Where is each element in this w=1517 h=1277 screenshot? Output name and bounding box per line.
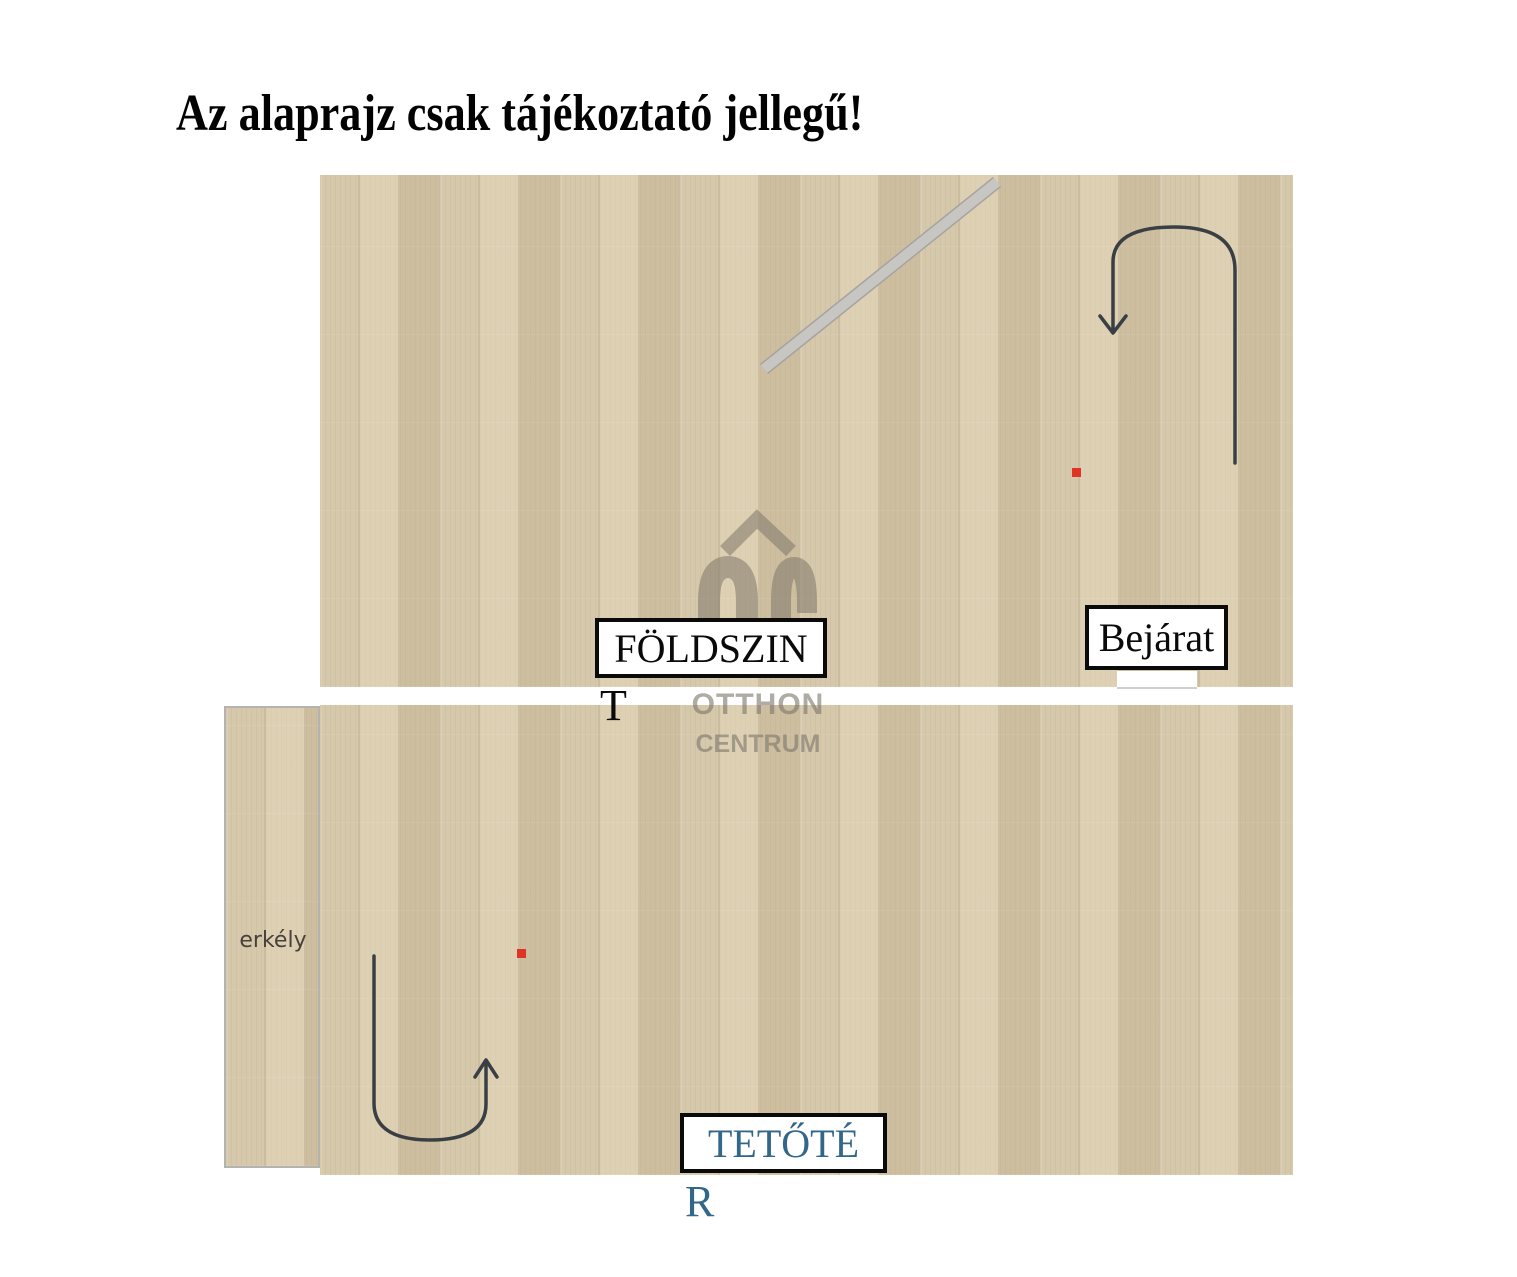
ground-floor-name-plate: FÖLDSZIN xyxy=(595,618,827,678)
ground-floor-name-line1: FÖLDSZIN xyxy=(614,625,807,672)
attic-red-marker xyxy=(517,949,526,958)
floorplan-page: Az alaprajz csak tájékoztató jellegű! fü… xyxy=(0,0,1517,1277)
watermark-line2: CENTRUM xyxy=(696,730,821,759)
attic-floor-plan xyxy=(320,705,1293,1175)
entrance-plate: Bejárat xyxy=(1085,605,1228,670)
disclaimer-title: Az alaprajz csak tájékoztató jellegű! xyxy=(176,84,863,143)
attic-floor-name-plate: TETŐTÉ xyxy=(680,1113,887,1173)
attic-floor-name-line1: TETŐTÉ xyxy=(708,1120,859,1167)
entrance-plate-label: Bejárat xyxy=(1099,614,1215,661)
room-label-balcony: erkély xyxy=(239,928,306,953)
watermark-line1: OTTHON xyxy=(692,688,825,722)
entrance-door-opening xyxy=(1117,671,1197,689)
ground-floor-name-line2: T xyxy=(600,684,627,728)
attic-floor-name-line2: R xyxy=(685,1180,714,1224)
ground-red-marker xyxy=(1072,468,1081,477)
